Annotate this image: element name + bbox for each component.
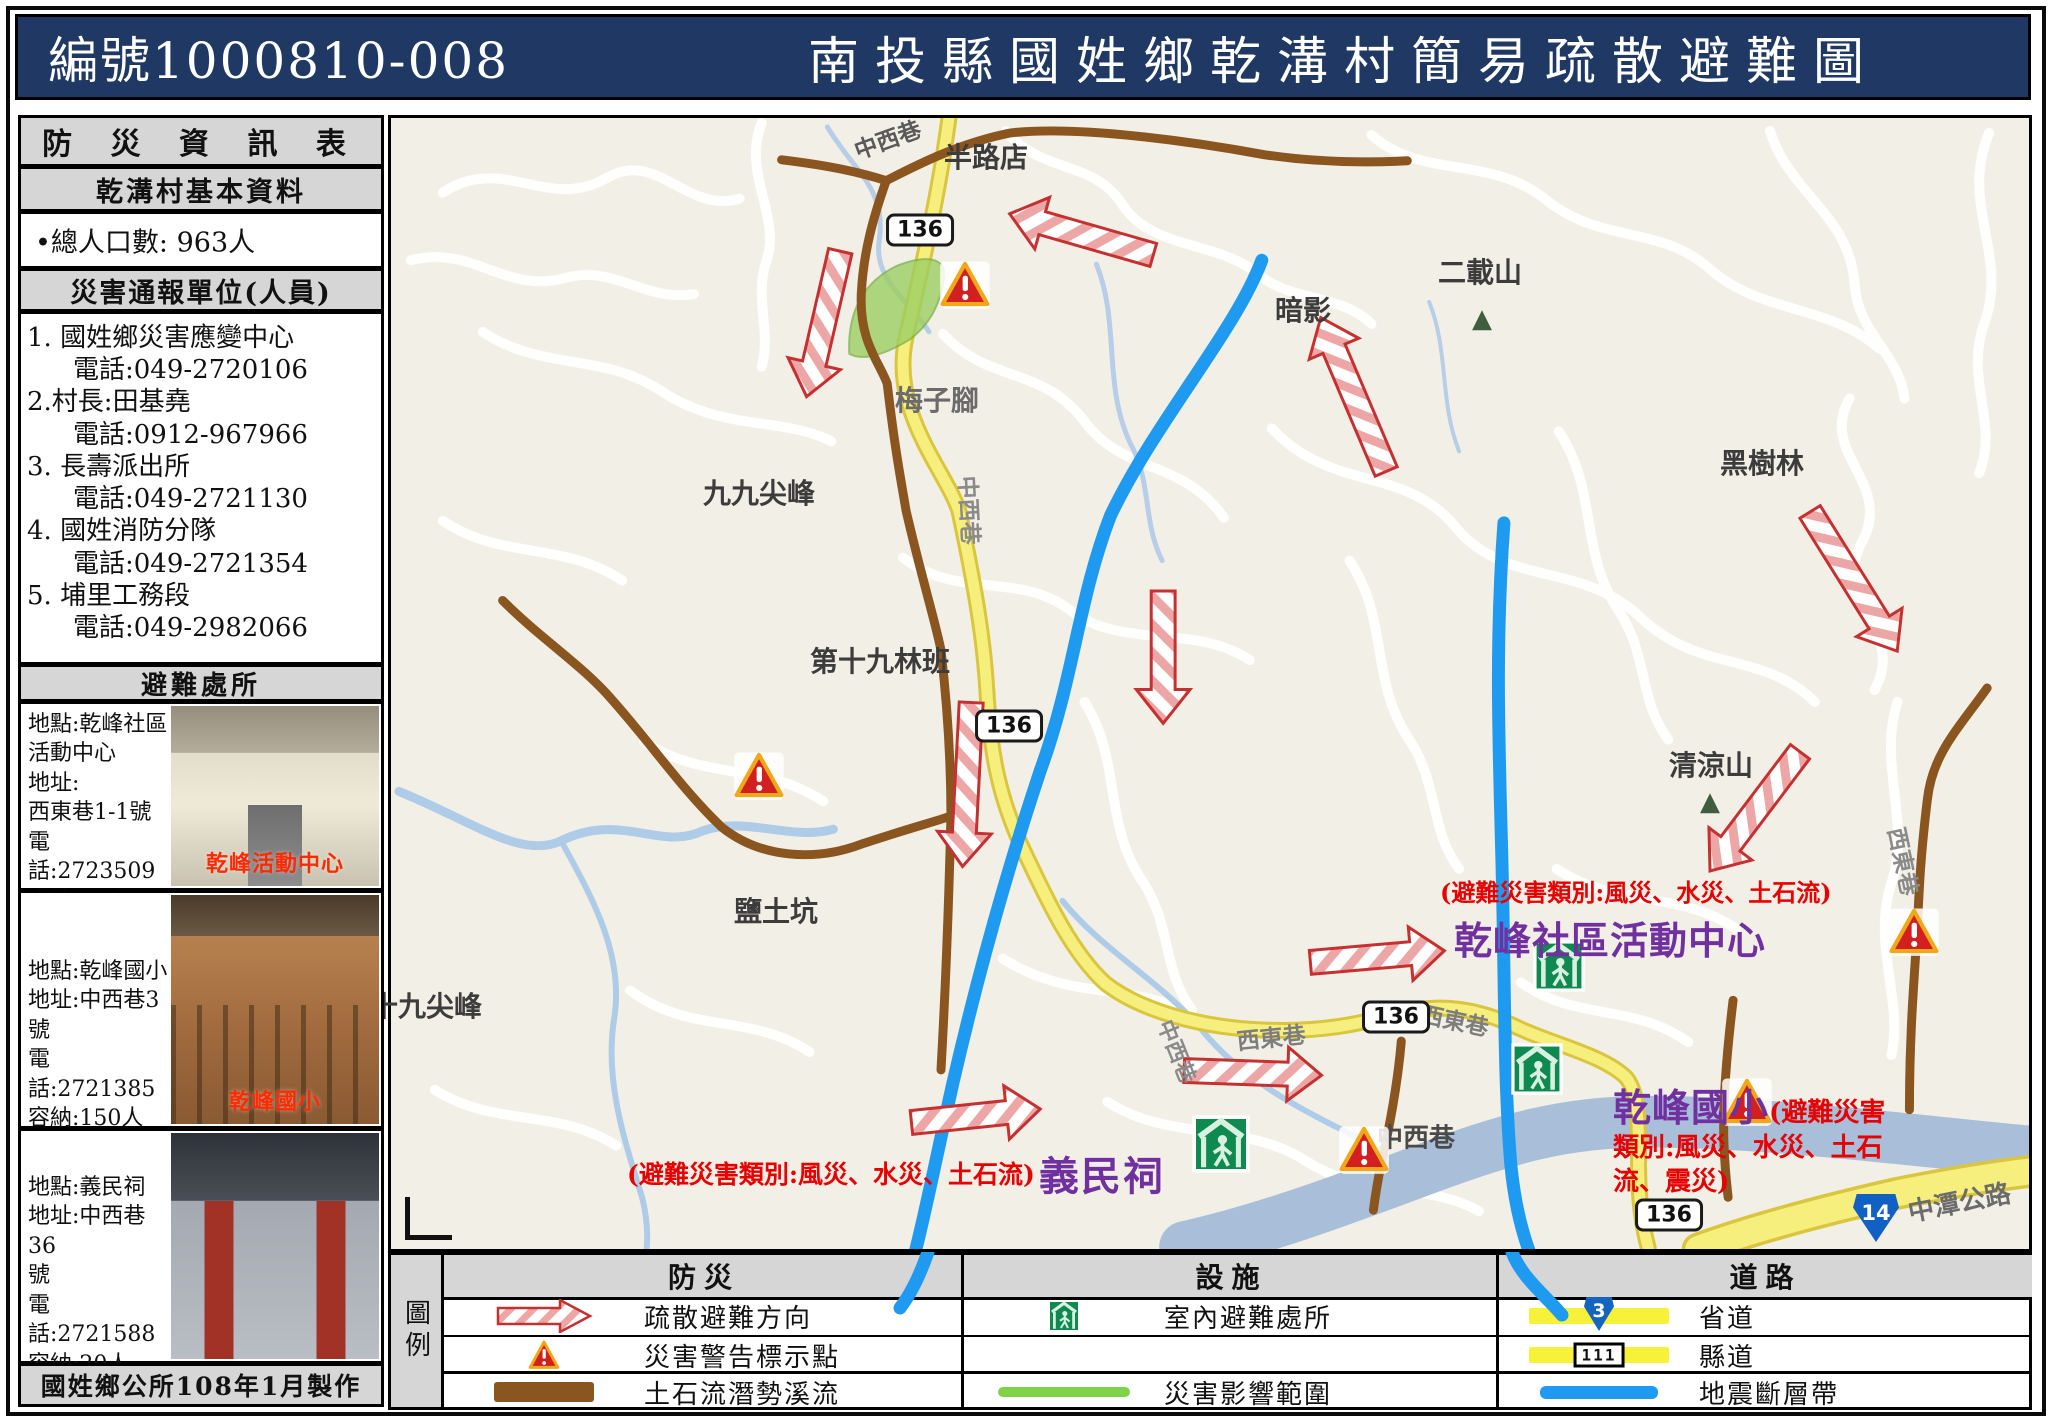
shelters-header: 避難處所	[18, 664, 384, 702]
shelter-photo: 乾峰活動中心	[171, 706, 379, 886]
shelter-info-line: 電話:2721588	[28, 1291, 170, 1350]
legend-row: 災害警告標示點	[444, 1335, 964, 1373]
county-road-icon: 111	[1499, 1347, 1699, 1363]
shelter-photo-caption: 乾峰國小	[171, 1084, 379, 1116]
legend-row: 疏散避難方向	[444, 1297, 964, 1335]
legend-label: 省道	[1699, 1298, 1755, 1335]
shelter-card: 地點:乾峰國小地址:中西巷3號電話:2721385容納:150人管理人:林秋榮乾…	[18, 890, 384, 1129]
shelter-photo: 乾峰國小	[171, 895, 379, 1124]
shelter-info-line: 號	[28, 1261, 170, 1290]
highway-14-road	[1698, 1171, 2029, 1249]
evacuation-arrow-shape	[1308, 924, 1447, 989]
shelter-info-line: 地址:中西巷3號	[28, 986, 170, 1045]
shelter-photo-caption: 乾峰活動中心	[171, 846, 379, 878]
legend-row: 3 省道	[1499, 1297, 2032, 1335]
contact-phone: 電話:049-2720106	[73, 354, 375, 386]
evacuation-direction-arrow	[1689, 736, 1822, 887]
contacts-list: 1. 國姓鄉災害應變中心電話:049-27201062.村長:田基堯電話:091…	[18, 311, 384, 665]
shelter-info-line: 地點:乾峰社區	[28, 710, 170, 739]
map-code: 編號1000810-008	[48, 21, 509, 93]
legend-label: 災害警告標示點	[644, 1337, 840, 1374]
contacts-header: 災害通報單位(人員)	[18, 268, 384, 312]
legend-column-roads: 道路 3 省道 111 縣道 地震斷層帶	[1496, 1255, 2032, 1407]
debris-flow-stream-path	[503, 600, 950, 854]
evacuation-arrow-shape	[1002, 188, 1160, 281]
header-bar: 編號1000810-008 南投縣國姓鄉乾溝村簡易疏散避難圖	[15, 14, 2031, 100]
page-title: 南投縣國姓鄉乾溝村簡易疏散避難圖	[808, 20, 1880, 94]
legend-row: 111 縣道	[1499, 1335, 2032, 1373]
contact-phone: 電話:049-2721130	[73, 483, 375, 515]
evacuation-arrow-shape	[1183, 1044, 1322, 1102]
contact-phone: 電話:049-2982066	[73, 612, 375, 644]
debris-flow-stream-path	[1909, 688, 1987, 1110]
legend-key-cell: 圖例	[391, 1255, 441, 1407]
sidebar-footer: 國姓鄉公所108年1月製作	[18, 1363, 384, 1407]
legend-row: 室內避難處所	[964, 1297, 1499, 1335]
shelter-info-line: 地點:乾峰國小	[28, 957, 170, 986]
evacuation-direction-arrow	[1787, 498, 1920, 666]
evacuation-direction-arrow	[1183, 1044, 1322, 1102]
map-graphics	[391, 118, 2029, 1249]
shelter-info-line: 西東巷1-1號	[28, 798, 170, 827]
shelter-info-line: 地址:	[28, 769, 170, 798]
shelter-photo	[171, 1133, 379, 1359]
evacuation-map-page: 編號1000810-008 南投縣國姓鄉乾溝村簡易疏散避難圖 防 災 資 訊 表…	[0, 0, 2048, 1418]
shelter-info-line: 活動中心	[28, 739, 170, 768]
legend-column-prevention: 防災 疏散避難方向 災害警告標示點 土石流潛勢溪流	[441, 1255, 964, 1407]
earthquake-fault-icon	[1499, 1386, 1699, 1399]
evacuation-direction-icon	[444, 1299, 644, 1333]
evacuation-direction-arrow	[1136, 591, 1190, 723]
debris-flow-stream-path	[886, 131, 1407, 181]
warning-point-icon	[444, 1339, 644, 1371]
evacuation-arrow-shape	[1689, 736, 1822, 887]
contact-name: 2.村長:田基堯	[27, 386, 375, 418]
contact-name: 3. 長壽派出所	[27, 451, 375, 483]
population-box: •總人口數: 963人	[18, 211, 384, 269]
legend-row: 土石流潛勢溪流	[444, 1371, 964, 1410]
county-road-badge: 111	[1574, 1343, 1625, 1368]
evacuation-direction-arrow	[1308, 924, 1447, 989]
legend-header-prevention: 防災	[444, 1255, 964, 1300]
shelter-info-line: 電話:2723509	[28, 828, 170, 887]
legend-label: 災害影響範圍	[1164, 1374, 1332, 1411]
legend-key-label: 圖例	[398, 1299, 435, 1363]
shelter-info-line: 地址:中西巷36	[28, 1202, 170, 1261]
population-value: •總人口數: 963人	[35, 221, 255, 260]
legend-label: 縣道	[1699, 1337, 1755, 1374]
shelter-info-line: 地點:義民祠	[28, 1173, 170, 1202]
legend-label: 地震斷層帶	[1699, 1374, 1839, 1411]
legend-row-empty	[964, 1335, 1499, 1373]
impact-area-icon	[964, 1387, 1164, 1397]
indoor-shelter-icon	[964, 1300, 1164, 1332]
legend-label: 室內避難處所	[1164, 1298, 1332, 1335]
provincial-road-icon: 3	[1499, 1308, 1699, 1324]
legend-header-roads: 道路	[1499, 1255, 2032, 1300]
debris-flow-stream-icon	[444, 1382, 644, 1402]
evacuation-arrow-shape	[1787, 498, 1920, 666]
legend-table: 圖例 防災 疏散避難方向 災害警告標示點 土石流	[388, 1252, 2032, 1410]
evacuation-direction-arrow	[1002, 188, 1160, 281]
evacuation-arrow-shape	[909, 1082, 1043, 1149]
legend-row: 地震斷層帶	[1499, 1371, 2032, 1410]
contact-name: 5. 埔里工務段	[27, 580, 375, 612]
shelter-card: 地點:乾峰社區活動中心地址:西東巷1-1號電話:2723509容納:50人管理人…	[18, 701, 384, 891]
legend-label: 疏散避難方向	[644, 1298, 812, 1335]
provincial-shield-badge: 3	[1584, 1297, 1614, 1331]
evacuation-direction-arrow	[909, 1082, 1043, 1149]
legend-row: 災害影響範圍	[964, 1371, 1499, 1410]
shelter-card: 地點:義民祠地址:中西巷36號電話:2721588容納:20人管理人:田基堯	[18, 1128, 384, 1364]
contact-name: 4. 國姓消防分隊	[27, 515, 375, 547]
sidebar-title: 防 災 資 訊 表	[18, 115, 384, 167]
map-canvas: (避難災害類別:風災、水災、土石流) 義民祠 (避難災害類別:風災、水災、土石流…	[388, 115, 2032, 1252]
sidebar-basic-header: 乾溝村基本資料	[18, 166, 384, 212]
legend-label: 土石流潛勢溪流	[644, 1374, 840, 1411]
minor-roads	[411, 123, 1991, 1211]
shelter-info-line: 電話:2721385	[28, 1045, 170, 1104]
contact-phone: 電話:049-2721354	[73, 548, 375, 580]
legend-column-facilities: 設施 室內避難處所 災害影響範圍	[961, 1255, 1499, 1407]
legend-header-facilities: 設施	[964, 1255, 1499, 1300]
contact-phone: 電話:0912-967966	[73, 419, 375, 451]
contact-name: 1. 國姓鄉災害應變中心	[27, 322, 375, 354]
evacuation-arrow-shape	[1136, 591, 1190, 723]
